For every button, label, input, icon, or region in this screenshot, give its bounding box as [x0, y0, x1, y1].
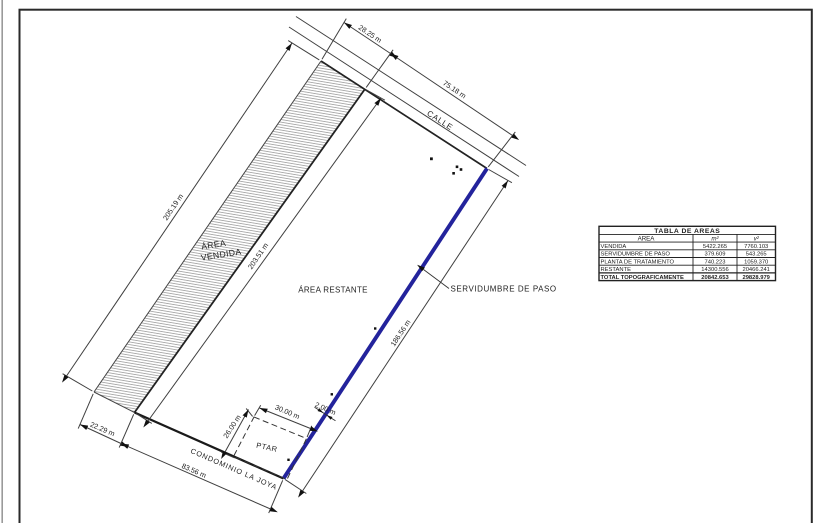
svg-text:v²: v²	[754, 236, 760, 243]
svg-text:740.223: 740.223	[705, 259, 726, 265]
svg-text:29828.979: 29828.979	[742, 275, 770, 281]
svg-text:m²: m²	[711, 236, 719, 243]
svg-text:20466.241: 20466.241	[742, 267, 769, 273]
svg-text:5422.265: 5422.265	[703, 244, 727, 250]
svg-text:83.56 m: 83.56 m	[180, 461, 207, 480]
svg-text:VENDIDA: VENDIDA	[601, 244, 627, 250]
svg-text:PLANTA DE TRATAMIENTO: PLANTA DE TRATAMIENTO	[601, 259, 675, 265]
svg-text:TABLA DE AREAS: TABLA DE AREAS	[654, 228, 720, 235]
svg-text:14300.556: 14300.556	[701, 267, 728, 273]
svg-text:SERVIDUMBRE DE PASO: SERVIDUMBRE DE PASO	[601, 252, 671, 258]
svg-text:379.609: 379.609	[705, 252, 726, 258]
svg-text:ÁREA RESTANTE: ÁREA RESTANTE	[298, 286, 368, 295]
svg-text:7760.103: 7760.103	[744, 244, 768, 250]
svg-text:1059.370: 1059.370	[744, 259, 768, 265]
svg-text:SERVIDUMBRE DE PASO: SERVIDUMBRE DE PASO	[451, 285, 557, 294]
svg-text:TOTAL TOPOGRAFICAMENTE: TOTAL TOPOGRAFICAMENTE	[601, 275, 684, 281]
svg-text:RESTANTE: RESTANTE	[601, 267, 632, 273]
svg-text:20842.653: 20842.653	[701, 275, 729, 281]
svg-text:CALLE: CALLE	[425, 109, 455, 133]
svg-text:AREA: AREA	[638, 236, 656, 243]
svg-text:PTAR: PTAR	[255, 441, 278, 454]
svg-text:543.265: 543.265	[746, 252, 767, 258]
svg-text:30.00 m: 30.00 m	[274, 403, 301, 421]
